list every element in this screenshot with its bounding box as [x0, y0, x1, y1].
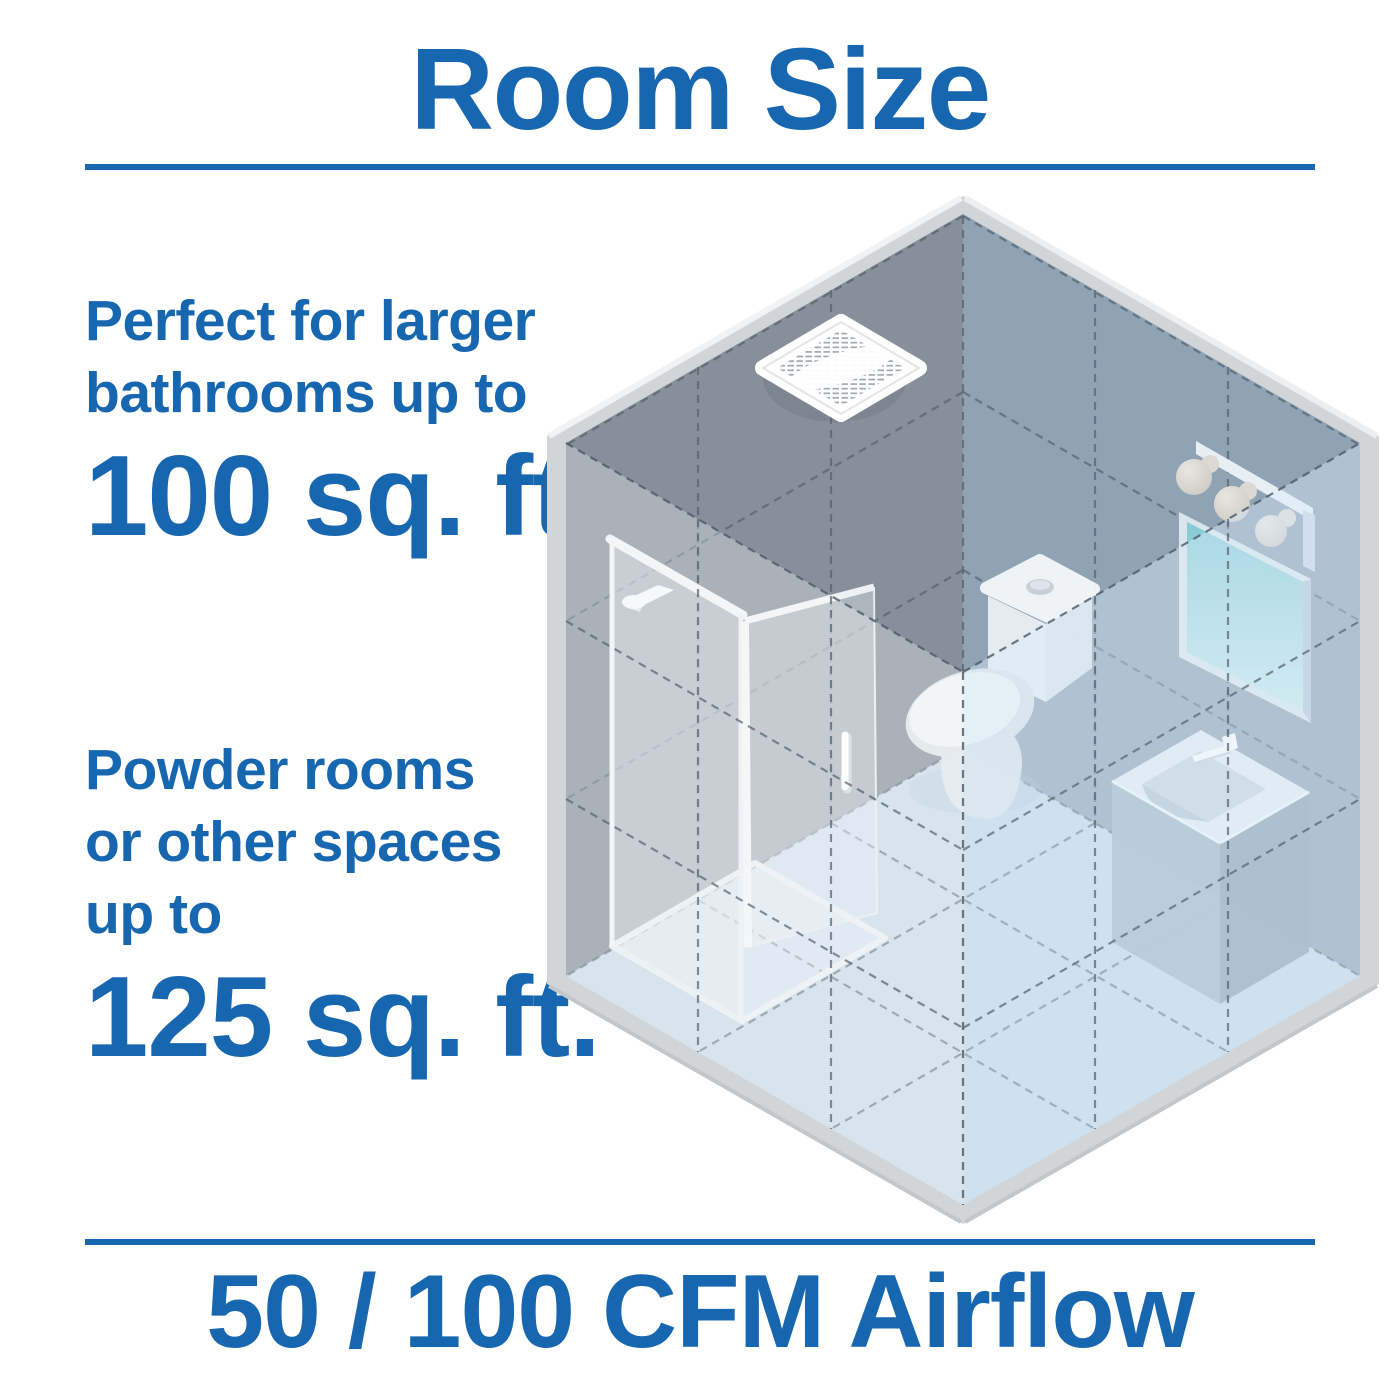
bathroom-isometric-illustration	[0, 0, 1400, 1400]
light-bulb	[1176, 459, 1212, 495]
footer-divider-rule	[85, 1239, 1315, 1245]
infographic-page: Room Size Perfect for larger bathrooms u…	[0, 0, 1400, 1400]
toilet-flush-button-top	[1030, 580, 1050, 590]
airflow-footer-text: 50 / 100 CFM Airflow	[0, 1250, 1400, 1375]
